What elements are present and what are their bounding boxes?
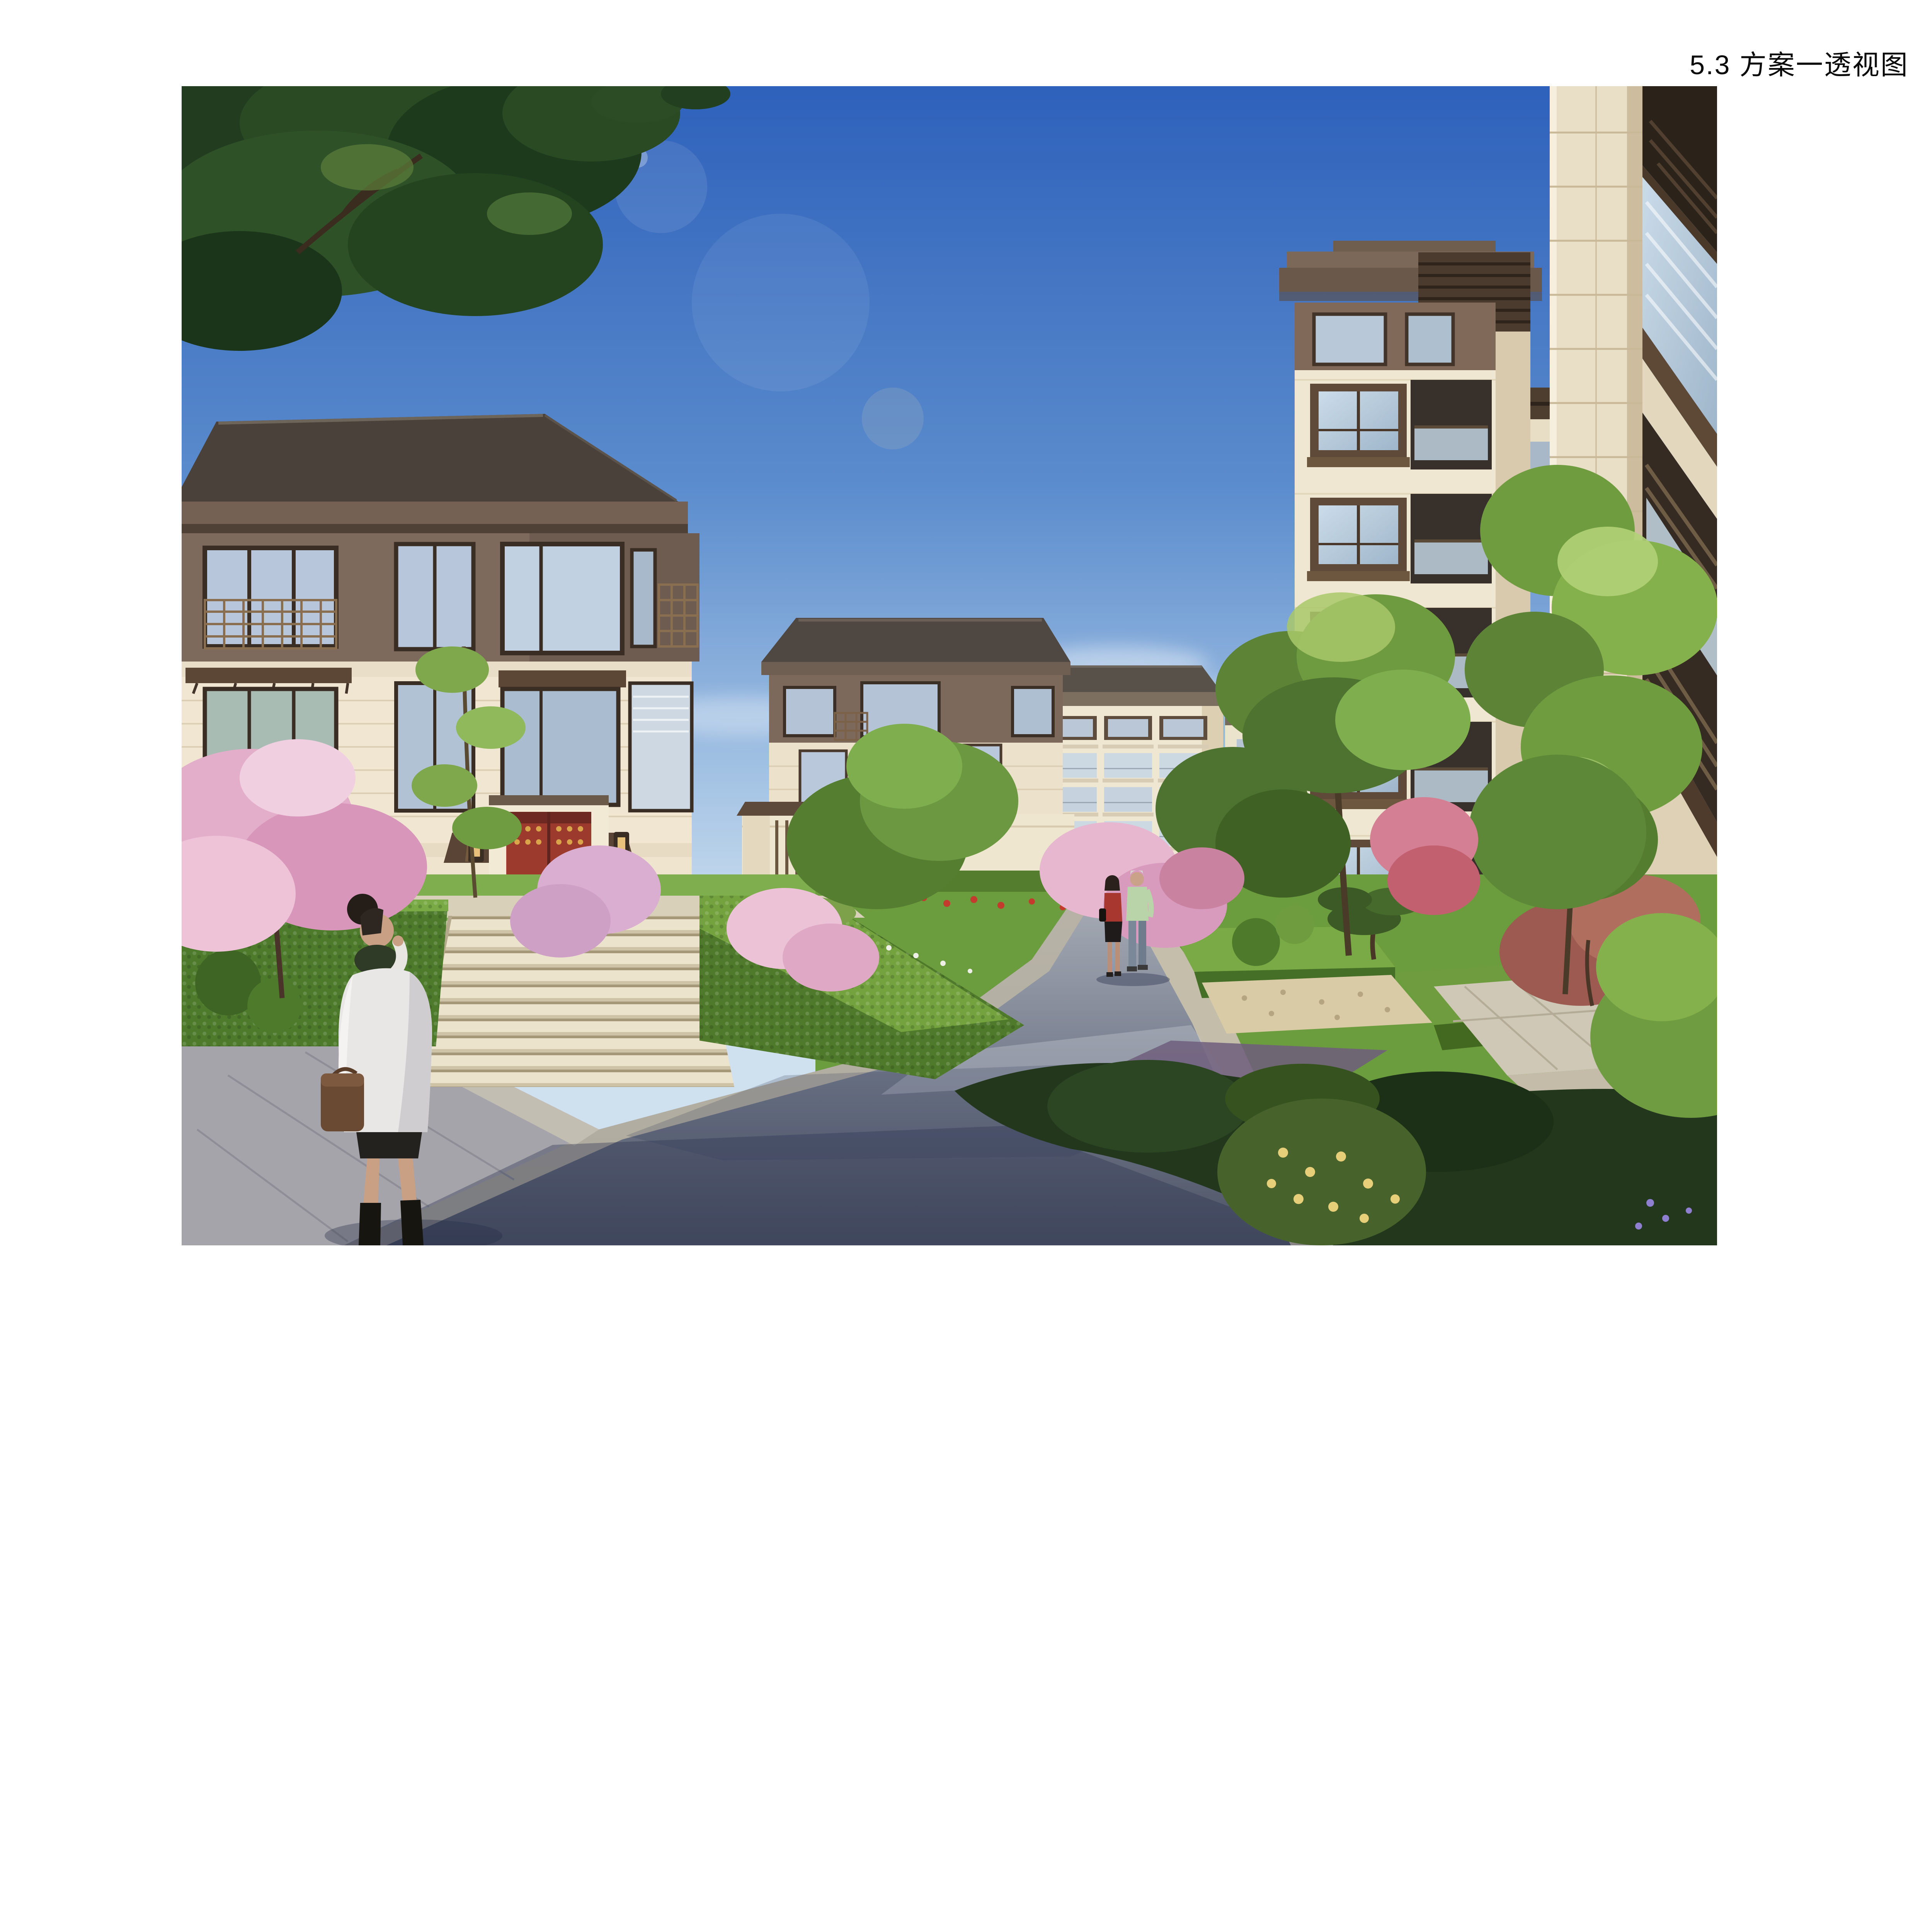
upper-windows: [205, 544, 698, 653]
handbag: [321, 1069, 364, 1131]
perspective-rendering: [182, 86, 1717, 1245]
document-page: 5.3 方案一透视图: [0, 0, 1918, 1356]
rendering-scene: [182, 86, 1717, 1245]
page-title: 5.3 方案一透视图: [1690, 43, 1909, 82]
footer: ▪建筑▪规划▪景观 浙江安地建筑规划设计有限公司 ZHEJIANG ANDI A…: [0, 1240, 1918, 1356]
